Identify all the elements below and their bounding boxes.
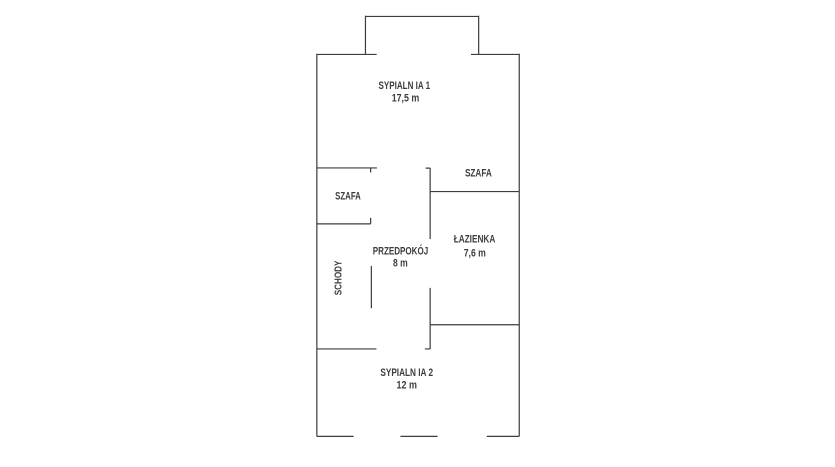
svg-text:PRZEDPOKÓJ: PRZEDPOKÓJ (373, 244, 429, 257)
svg-text:8 m: 8 m (393, 258, 408, 270)
svg-text:SYPIALN IA 1: SYPIALN IA 1 (379, 80, 431, 92)
svg-text:SZAFA: SZAFA (335, 191, 361, 203)
svg-text:ŁAZIENKA: ŁAZIENKA (454, 234, 496, 246)
svg-text:17,5 m: 17,5 m (392, 92, 420, 104)
svg-text:7,6 m: 7,6 m (464, 247, 486, 259)
svg-text:SYPIALN IA 2: SYPIALN IA 2 (380, 367, 433, 379)
svg-text:SZAFA: SZAFA (465, 168, 492, 180)
svg-text:12 m: 12 m (397, 380, 418, 392)
svg-text:SCHODY: SCHODY (333, 261, 345, 296)
